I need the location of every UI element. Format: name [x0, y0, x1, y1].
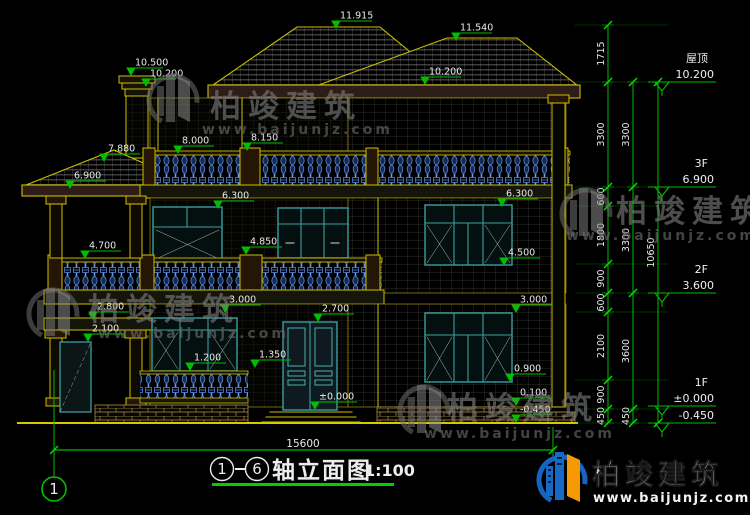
- watermark-brand: 柏竣建筑: [88, 292, 240, 328]
- chain-dimension-value: 600: [596, 293, 607, 311]
- window-1f-right: [425, 313, 512, 382]
- level-value: 10.200: [676, 68, 715, 81]
- elevation-value: 6.900: [74, 171, 101, 182]
- chain-dimension-value: 1715: [596, 41, 607, 65]
- level-label: 屋顶: [686, 52, 708, 65]
- elevation-value: 11.540: [460, 23, 493, 34]
- elevation-value: 4.700: [89, 241, 116, 252]
- watermark-url: www.baijunjz.com: [566, 228, 750, 244]
- door-side: [60, 342, 91, 412]
- cad-elevation-drawing: 11.91511.54010.50010.20010.2008.0008.150…: [0, 0, 750, 515]
- window-2f-left: [153, 207, 222, 262]
- elevation-value: ±0.000: [319, 392, 354, 403]
- brand-logo-url: www.baijunjz.com: [593, 491, 750, 506]
- level-label: 2F: [695, 263, 708, 276]
- bottom-dimension-value: 15600: [286, 438, 319, 450]
- plinth-left: [95, 405, 248, 423]
- watermark-url: www.baijunjz.com: [98, 326, 289, 342]
- elevation-value: 1.350: [259, 350, 286, 361]
- elevation-value: 3.000: [520, 295, 547, 306]
- chain-dimension-value: 900: [596, 269, 607, 287]
- elevation-value: 4.850: [250, 237, 277, 248]
- level-label: 3F: [695, 157, 708, 170]
- level-value: -0.450: [679, 409, 714, 422]
- watermark-url: www.baijunjz.com: [424, 426, 615, 442]
- watermark-brand: 柏竣建筑: [616, 194, 750, 230]
- chain-dimension-value: 3300: [621, 122, 632, 146]
- chain-dimension-value: 3600: [621, 339, 632, 363]
- elevation-value: 1.200: [194, 353, 221, 364]
- chain-dimension-value: 3300: [596, 122, 607, 146]
- level-value: ±0.000: [673, 392, 714, 405]
- elevation-value: 11.915: [340, 11, 373, 22]
- brand-logo-name: 柏竣建筑: [592, 458, 724, 491]
- window-2f-middle: [278, 208, 348, 258]
- drawing-canvas: 11.91511.54010.50010.20010.2008.0008.150…: [0, 0, 750, 515]
- level-label: 1F: [695, 376, 708, 389]
- watermark-brand: 柏竣建筑: [210, 89, 362, 125]
- chain-dimension-value: 2100: [596, 334, 607, 358]
- title-scale: 1:100: [364, 461, 415, 480]
- porch-eave-band: [22, 185, 154, 196]
- elevation-value: 6.300: [506, 189, 533, 200]
- elevation-value: 7.880: [108, 144, 135, 155]
- elevation-value: 0.900: [514, 364, 541, 375]
- level-value: 3.600: [683, 279, 715, 292]
- watermark-url: www.baijunjz.com: [202, 122, 393, 138]
- elevation-value: 2.700: [322, 304, 349, 315]
- title-text: 轴立面图: [272, 457, 372, 484]
- elevation-value: 10.200: [429, 67, 462, 78]
- chain-dimension-value: 450: [621, 407, 632, 425]
- level-value: 6.900: [683, 173, 715, 186]
- elevation-value: 6.300: [222, 191, 249, 202]
- title-axis-end: 6: [252, 460, 262, 478]
- window-2f-right: [425, 205, 512, 265]
- title-underline: [212, 483, 394, 486]
- elevation-value: 10.500: [135, 58, 168, 69]
- watermark-brand: 柏竣建筑: [447, 391, 599, 427]
- axis-bubble-number: 1: [49, 480, 59, 498]
- elevation-value: 4.500: [508, 248, 535, 259]
- title-axis-start: 1: [217, 460, 227, 478]
